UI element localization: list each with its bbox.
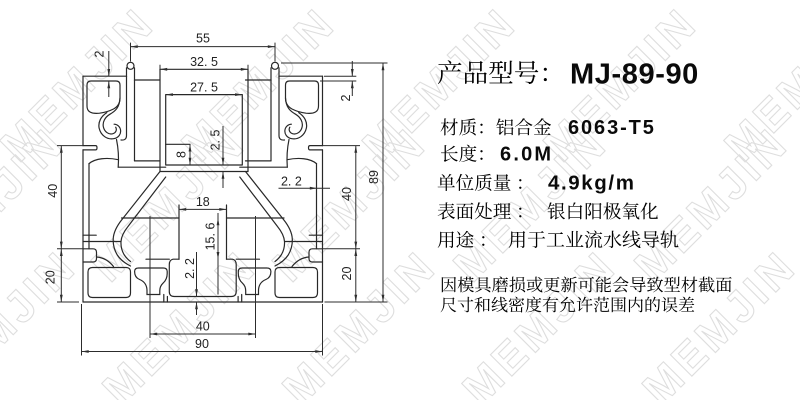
- svg-text:15. 6: 15. 6: [204, 223, 218, 251]
- svg-text:40: 40: [340, 187, 354, 201]
- svg-text:32. 5: 32. 5: [190, 55, 218, 69]
- svg-text:6.0M: 6.0M: [500, 143, 553, 165]
- svg-text:2. 2: 2. 2: [183, 258, 197, 279]
- svg-text:55: 55: [196, 32, 210, 46]
- svg-text:MJ-89-90: MJ-89-90: [570, 59, 699, 91]
- svg-text:2: 2: [93, 50, 107, 57]
- svg-text:89: 89: [367, 170, 381, 184]
- svg-text:40: 40: [196, 319, 210, 333]
- svg-text:8: 8: [174, 151, 188, 158]
- svg-text:90: 90: [195, 337, 209, 351]
- svg-text:20: 20: [340, 267, 354, 281]
- svg-text:18: 18: [196, 195, 210, 209]
- svg-text:2. 5: 2. 5: [208, 130, 222, 151]
- svg-text:2. 2: 2. 2: [281, 174, 302, 188]
- svg-text:4.9kg/m: 4.9kg/m: [548, 171, 636, 194]
- svg-text:27. 5: 27. 5: [190, 80, 218, 94]
- svg-text:2: 2: [339, 94, 353, 101]
- svg-text:6063-T5: 6063-T5: [568, 117, 656, 139]
- svg-text:40: 40: [46, 184, 60, 198]
- svg-text:20: 20: [43, 270, 57, 284]
